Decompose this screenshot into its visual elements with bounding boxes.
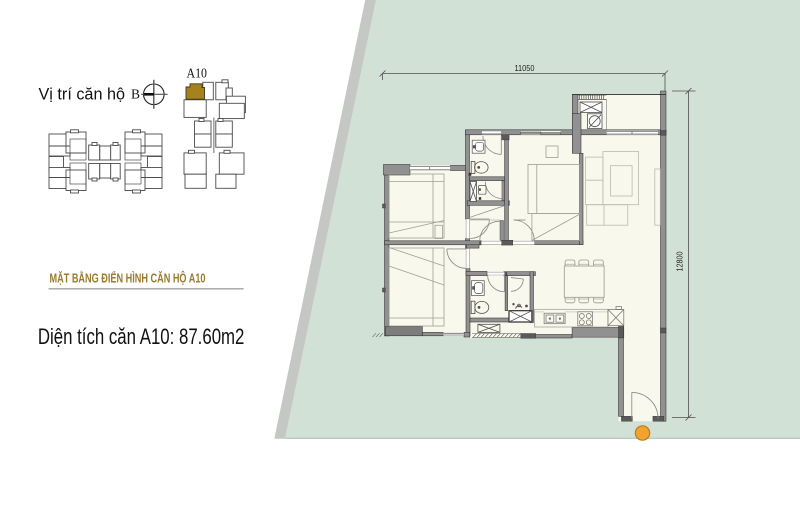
svg-text:12800: 12800 xyxy=(675,251,685,271)
svg-text:11050: 11050 xyxy=(515,63,535,73)
svg-text:Diện tích căn A10: 87.60m2: Diện tích căn A10: 87.60m2 xyxy=(38,324,245,349)
svg-text:B: B xyxy=(131,87,140,102)
svg-text:Vị trí căn hộ: Vị trí căn hộ xyxy=(39,85,126,104)
svg-text:MẶT BẰNG ĐIỂN HÌNH CĂN HỘ A10: MẶT BẰNG ĐIỂN HÌNH CĂN HỘ A10 xyxy=(50,271,206,286)
svg-text:A10: A10 xyxy=(187,66,208,81)
